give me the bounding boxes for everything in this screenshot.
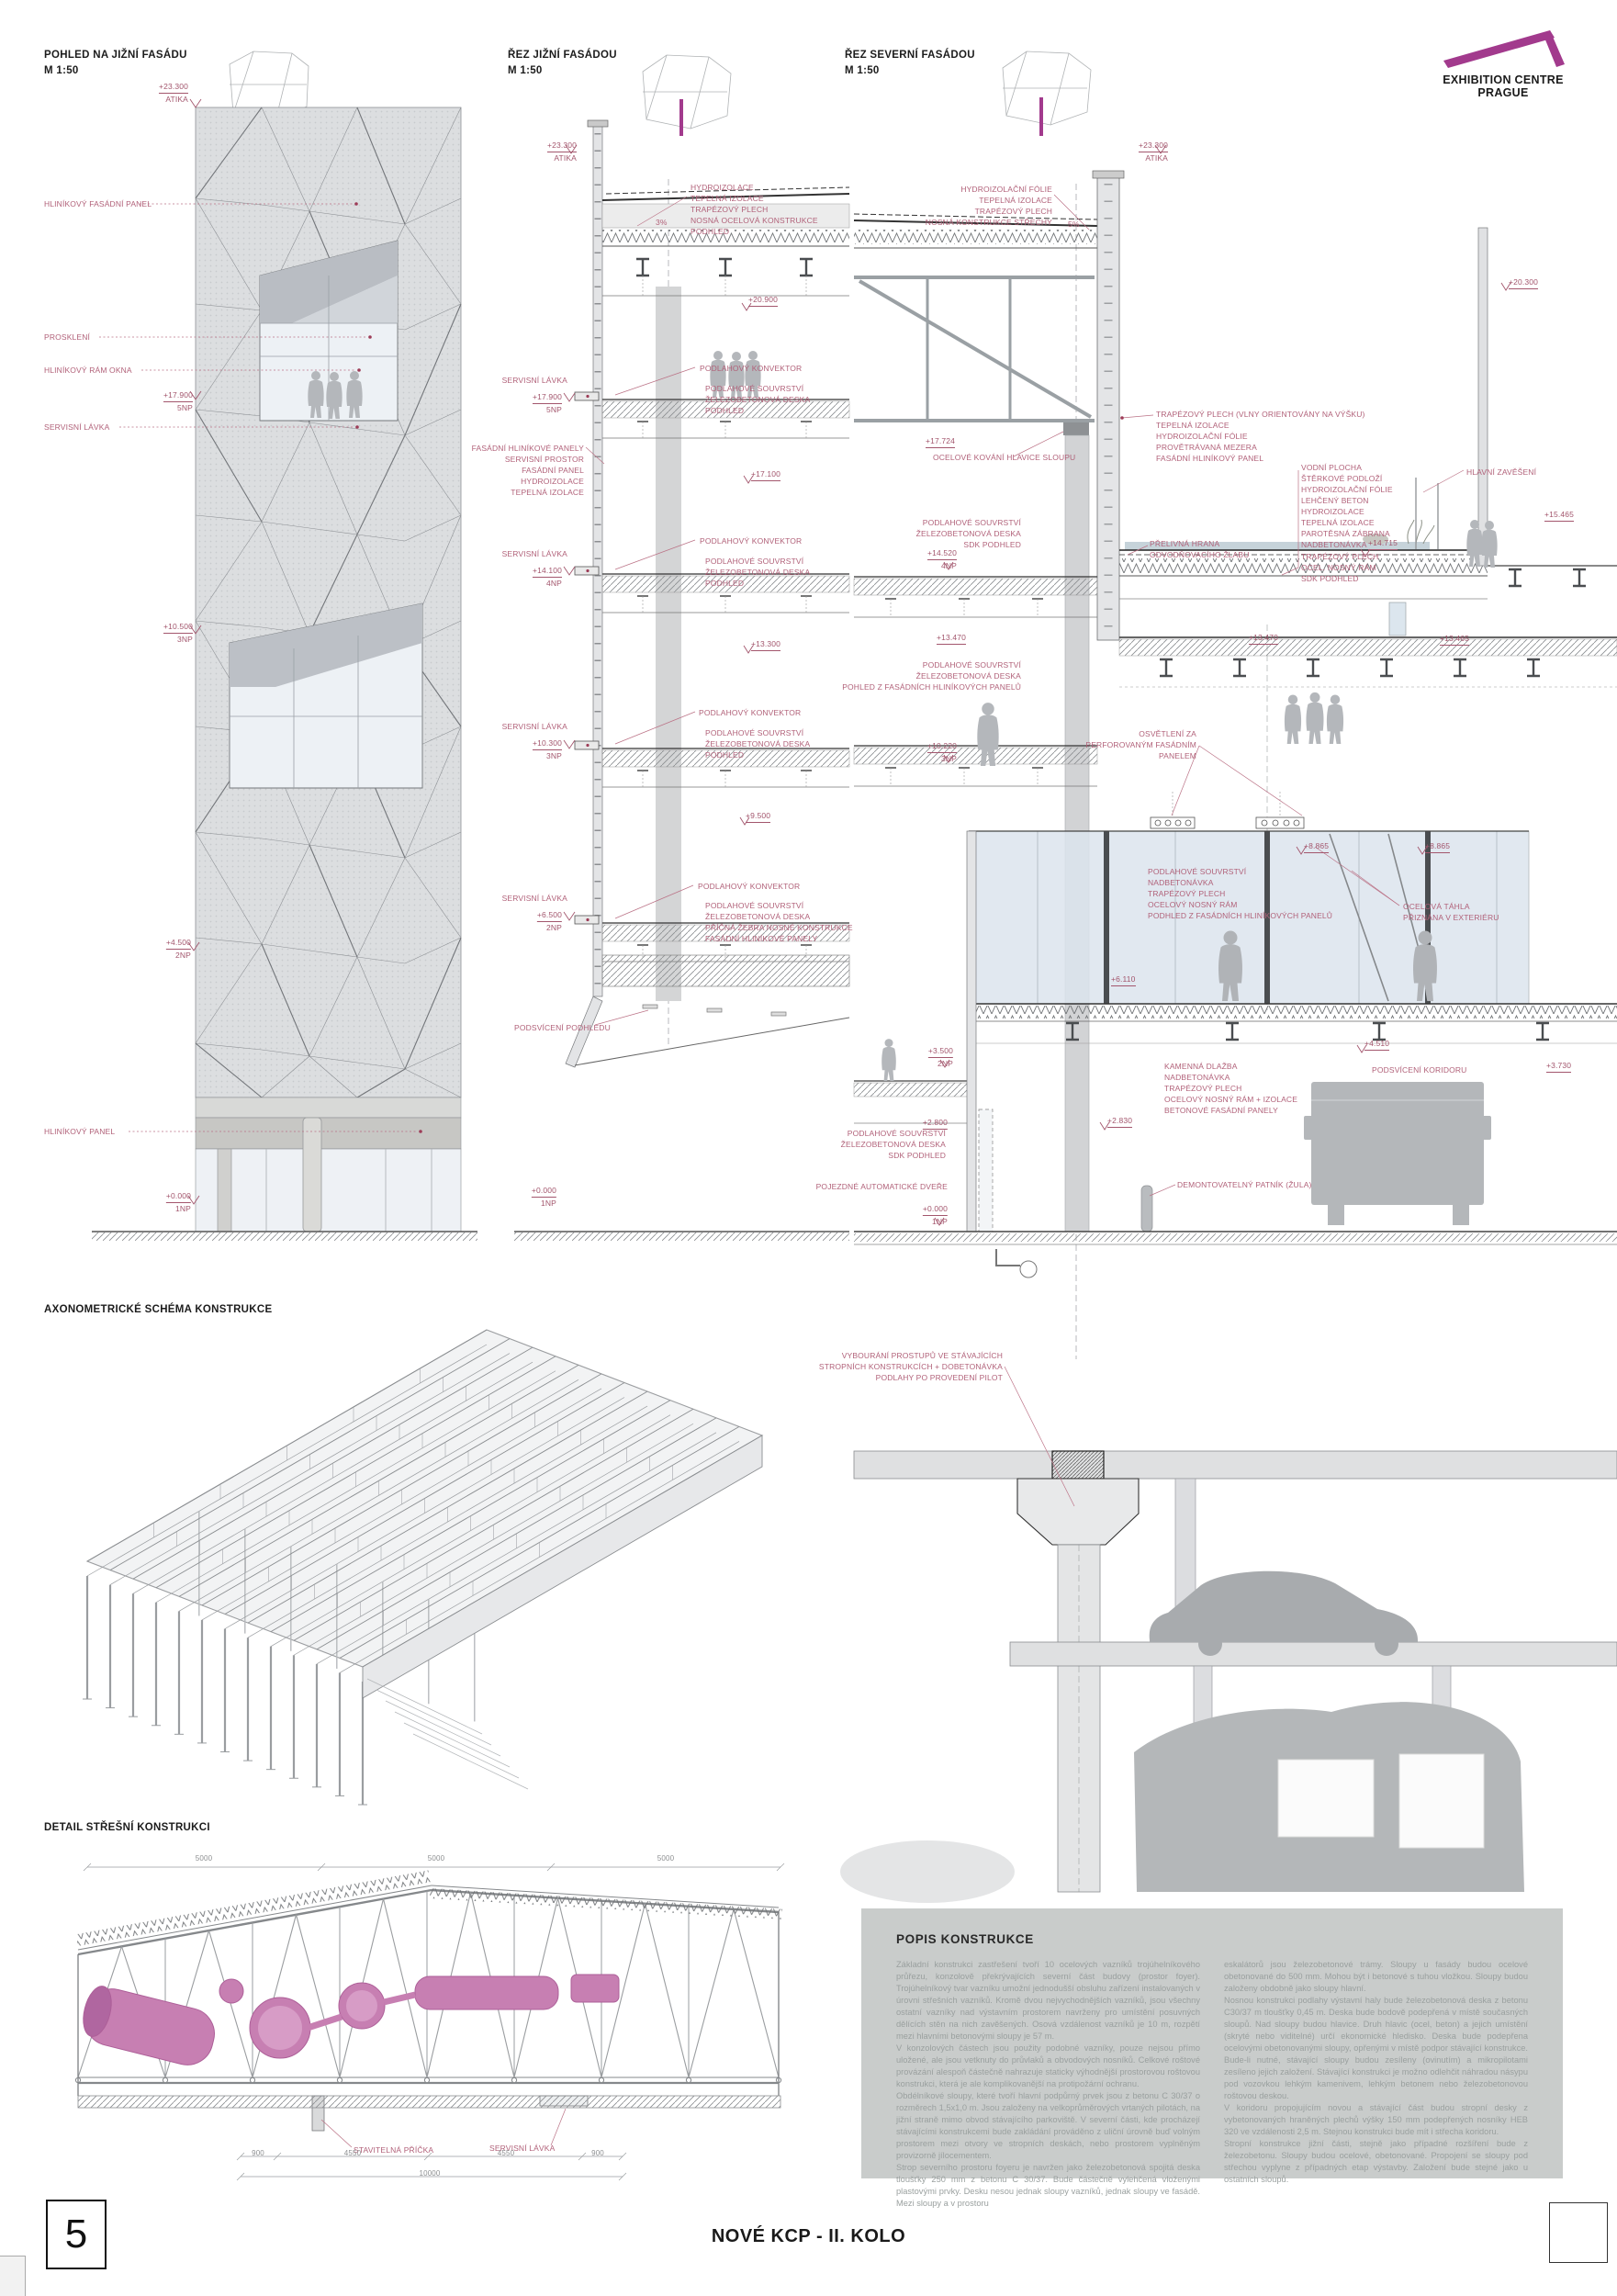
scale-text: M 1:50 [44, 63, 187, 79]
axonometric-label: AXONOMETRICKÉ SCHÉMA KONSTRUKCE [44, 1304, 272, 1315]
roof-detail-drawing [75, 1863, 784, 2180]
axonometric-drawing [83, 1330, 762, 1805]
keyplan-sketch-3 [1003, 51, 1091, 136]
drawing-title-1: POHLED NA JIŽNÍ FASÁDU M 1:50 [44, 48, 187, 80]
drawing-title-3: ŘEZ SEVERNÍ FASÁDOU M 1:50 [845, 48, 975, 80]
south-section-drawing [514, 120, 849, 1241]
title-text: POHLED NA JIŽNÍ FASÁDU [44, 48, 187, 63]
drawing-title-2: ŘEZ JIŽNÍ FASÁDOU M 1:50 [508, 48, 617, 80]
facade-view-drawing [92, 107, 477, 1241]
roof-detail-label: DETAIL STŘEŠNÍ KONSTRUKCI [44, 1822, 210, 1833]
title-text: ŘEZ JIŽNÍ FASÁDOU [508, 48, 617, 63]
page-number: 5 [65, 2212, 87, 2257]
construction-description-block: POPIS KONSTRUKCE Základní konstrukci zas… [861, 1908, 1563, 2178]
scale-text: M 1:50 [845, 63, 975, 79]
logo-roof-spacer [1434, 28, 1572, 73]
hvac-ducts [79, 1975, 619, 2070]
project-footer-title: NOVÉ KCP - II. KOLO [712, 2226, 905, 2247]
bollard [1141, 1186, 1152, 1232]
logo-line1: EXHIBITION CENTRE [1434, 73, 1572, 86]
popis-column-2: eskalátorů jsou železobetonové trámy. Sl… [1224, 1959, 1528, 2210]
popis-title: POPIS KONSTRUKCE [896, 1932, 1528, 1946]
exhibition-centre-logo: EXHIBITION CENTRE PRAGUE [1434, 28, 1572, 100]
page-number-box: 5 [46, 2200, 107, 2269]
corner-box [1549, 2202, 1608, 2263]
scale-text: M 1:50 [508, 63, 617, 79]
logo-line2: PRAGUE [1434, 86, 1572, 99]
presentation-sheet: POHLED NA JIŽNÍ FASÁDU M 1:50 ŘEZ JIŽNÍ … [0, 0, 1617, 2296]
north-section-drawing [840, 171, 1617, 1903]
edge-box [0, 2256, 26, 2296]
truck-silhouette [1304, 1082, 1491, 1225]
title-text: ŘEZ SEVERNÍ FASÁDOU [845, 48, 975, 63]
popis-column-1: Základní konstrukci zastřešení tvoří 10 … [896, 1959, 1200, 2210]
keyplan-sketch-2 [643, 55, 731, 136]
